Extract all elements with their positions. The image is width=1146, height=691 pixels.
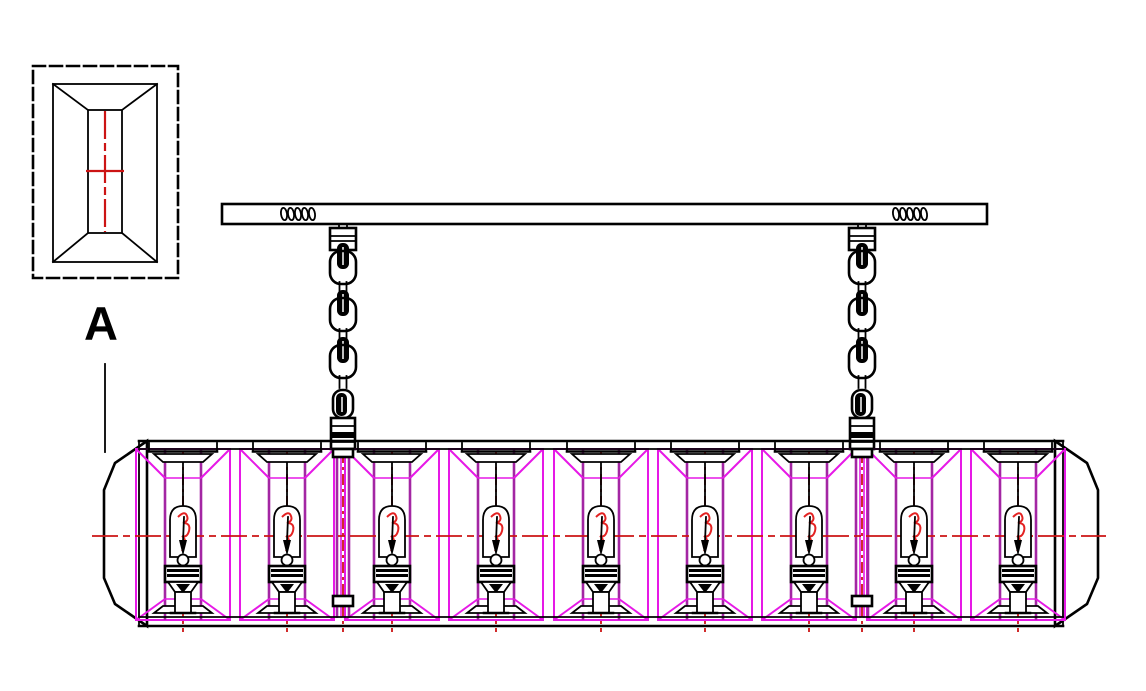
bulb-base-bead xyxy=(282,555,293,566)
lamp-stem xyxy=(801,592,817,613)
lamp xyxy=(149,443,217,613)
lamp-stem xyxy=(906,592,922,613)
bulb-base-bead xyxy=(491,555,502,566)
cad-drawing-canvas: A xyxy=(0,0,1146,691)
lamp-stem xyxy=(1010,592,1026,613)
drawing-svg xyxy=(0,0,1146,691)
lamp-stem xyxy=(279,592,295,613)
lamp-stem xyxy=(697,592,713,613)
lamp xyxy=(984,443,1052,613)
lamp-stem xyxy=(488,592,504,613)
lamp xyxy=(567,443,635,613)
chandelier-elevation-drawing xyxy=(0,0,1146,691)
lamp xyxy=(358,443,426,613)
lamp xyxy=(880,443,948,613)
lamp-stem xyxy=(384,592,400,613)
lamp-stem xyxy=(175,592,191,613)
bulb-base-bead xyxy=(700,555,711,566)
chain-right xyxy=(849,224,875,449)
chain-left xyxy=(330,224,356,449)
lamp-stem xyxy=(593,592,609,613)
lamp xyxy=(671,443,739,613)
mounting-bar xyxy=(222,204,987,224)
bulb-base-bead xyxy=(909,555,920,566)
lamp xyxy=(775,443,843,613)
bulb-base-bead xyxy=(596,555,607,566)
bulb-base-bead xyxy=(804,555,815,566)
lamp xyxy=(462,443,530,613)
section-label-a: A xyxy=(84,300,118,347)
detail-view xyxy=(33,66,178,278)
lamp xyxy=(253,443,321,613)
bulb-base-bead xyxy=(387,555,398,566)
bulb-base-bead xyxy=(1013,555,1024,566)
bulb-base-bead xyxy=(178,555,189,566)
